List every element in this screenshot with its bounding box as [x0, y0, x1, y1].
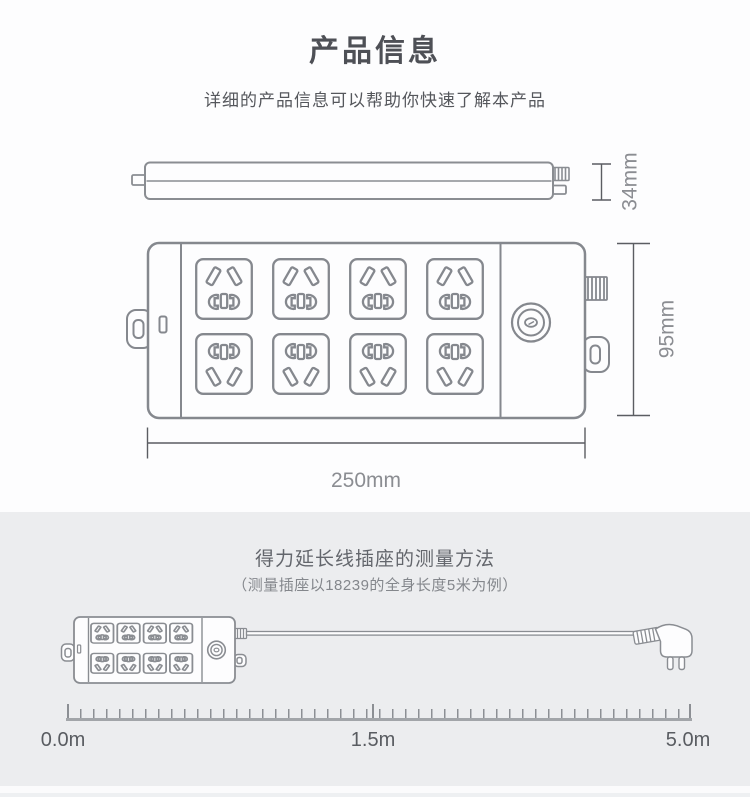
ruler-baseline: [66, 718, 692, 721]
measurement-section: 得力延长线插座的测量方法 （测量插座以18239的全身长度5米为例）: [0, 512, 750, 786]
page-subtitle: 详细的产品信息可以帮助你快速了解本产品: [0, 86, 750, 111]
measurement-diagram: [0, 605, 750, 705]
measurement-subtitle: （测量插座以18239的全身长度5米为例）: [0, 574, 750, 595]
footer-gray-strip: [0, 793, 750, 797]
width-dimension-marker: [148, 428, 586, 459]
ruler-minor-ticks: [67, 709, 691, 718]
ruler-label-end: 5.0m: [653, 729, 723, 752]
right-mounting-ear-icon: [583, 337, 609, 372]
height-dimension-marker: [592, 164, 611, 200]
ruler-major-tick-middle: [372, 704, 374, 719]
depth-dimension-label: 95mm: [656, 300, 679, 358]
power-cord: [247, 632, 643, 636]
product-detail-page: 产品信息 详细的产品信息可以帮助你快速了解本产品 34mm: [0, 0, 750, 797]
power-strip-side-view-illustration: 34mm: [0, 140, 750, 235]
ruler-major-tick-end: [689, 704, 691, 719]
height-dimension-label: 34mm: [619, 152, 642, 210]
mini-grommet-icon: [235, 629, 247, 639]
ruler-label-middle: 1.5m: [338, 729, 408, 752]
cord-grommet-icon: [584, 277, 607, 300]
footer-white-strip: [0, 786, 750, 793]
product-info-section: 产品信息 详细的产品信息可以帮助你快速了解本产品 34mm: [0, 0, 750, 512]
page-title: 产品信息: [0, 26, 750, 70]
measurement-title: 得力延长线插座的测量方法: [0, 544, 750, 571]
ruler-major-tick-start: [67, 704, 69, 719]
depth-dimension-marker: [617, 244, 650, 416]
power-strip-top-view-illustration: 95mm 250mm: [0, 235, 750, 500]
power-switch-icon: [512, 304, 550, 342]
mini-left-ear-icon: [62, 644, 75, 661]
width-dimension-label: 250mm: [331, 469, 401, 492]
ruler-label-start: 0.0m: [28, 729, 98, 752]
plug-icon: [633, 624, 692, 669]
